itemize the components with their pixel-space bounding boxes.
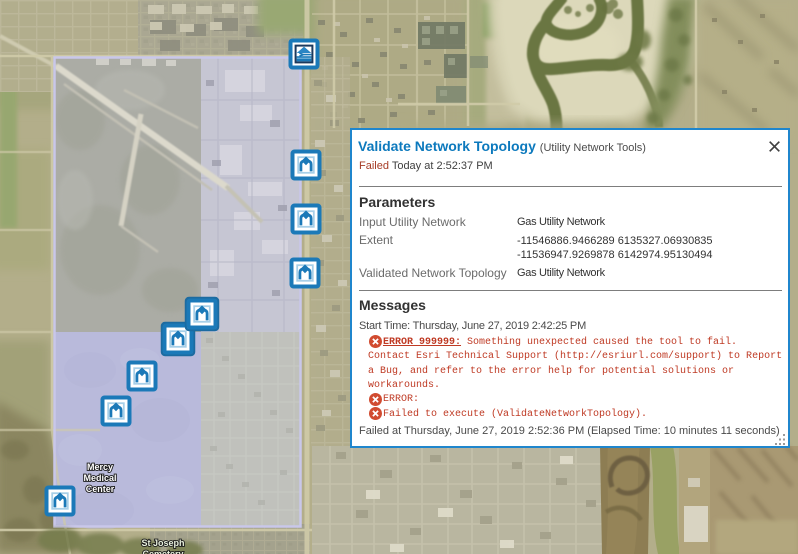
- svg-text:St Joseph: St Joseph: [141, 538, 184, 548]
- svg-text:Mercy: Mercy: [87, 462, 113, 472]
- svg-text:Medical: Medical: [83, 473, 116, 483]
- svg-text:Cemetery: Cemetery: [142, 549, 183, 554]
- svg-text:Center: Center: [86, 484, 115, 494]
